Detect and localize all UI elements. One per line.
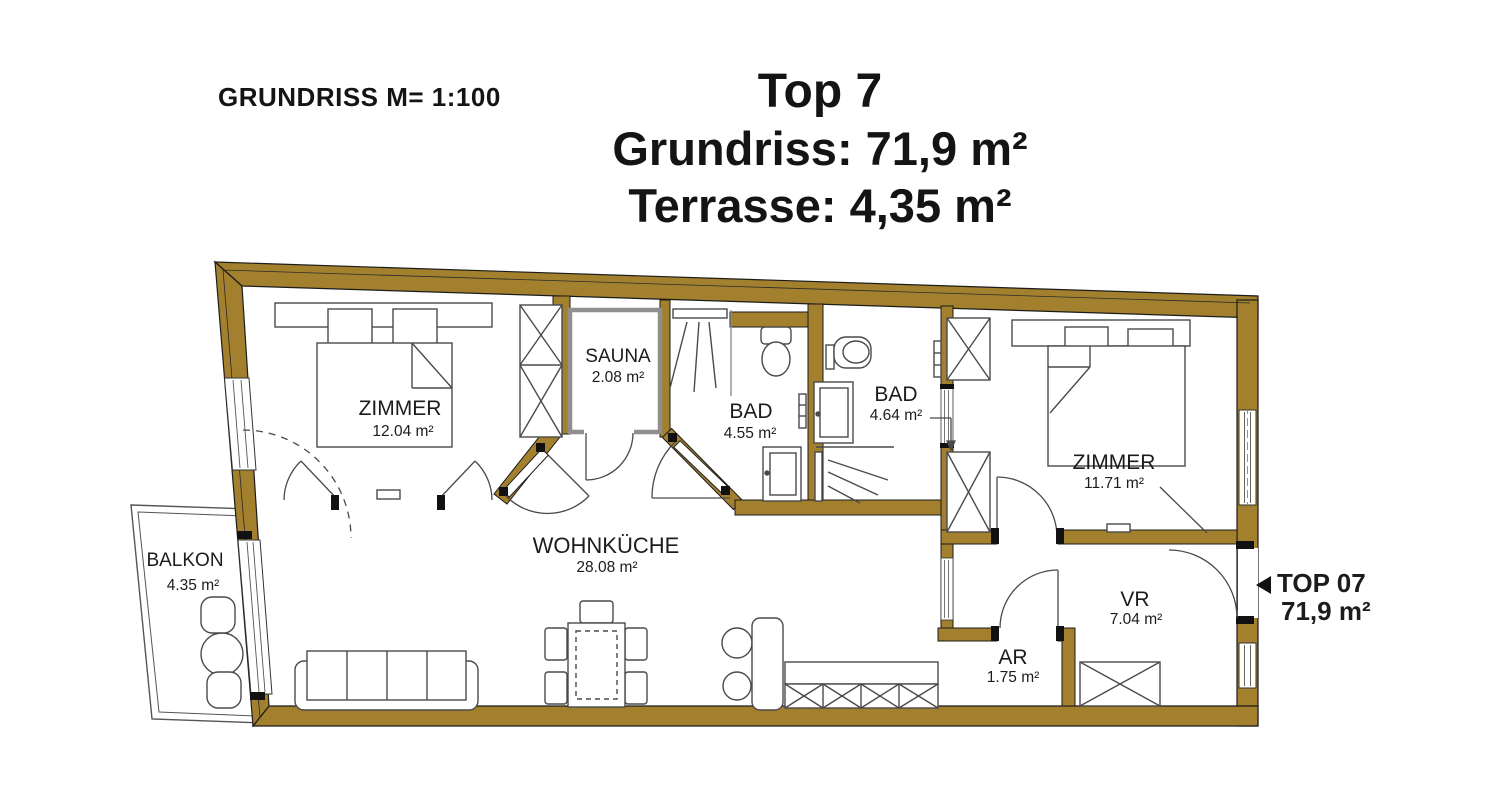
room-label-balcony: BALKON — [146, 550, 223, 571]
unit-marker: TOP 07 71,9 m² — [1256, 568, 1371, 626]
storage-door — [1000, 570, 1058, 628]
room-area-balcony: 4.35 m² — [167, 577, 220, 594]
bath2-shower — [815, 447, 894, 503]
bedroom2-bed — [1048, 327, 1185, 466]
unit-title-block: Top 7 Grundriss: 71,9 m² Terrasse: 4,35 … — [570, 64, 1070, 234]
sliding-door-bath2 — [930, 384, 955, 450]
room-area-bath2: 4.64 m² — [870, 407, 923, 424]
unit-terrace-area: Terrasse: 4,35 m² — [570, 177, 1070, 234]
shower-symbol — [670, 309, 731, 396]
room-area-sauna: 2.08 m² — [592, 369, 645, 386]
unit-marker-area: 71,9 m² — [1281, 596, 1371, 626]
bedroom2-wardrobes — [947, 318, 990, 532]
unit-marker-label: TOP 07 — [1277, 568, 1366, 598]
room-label-sauna: SAUNA — [585, 346, 651, 367]
unit-title: Top 7 — [570, 64, 1070, 120]
bath2-toilet — [826, 337, 871, 369]
bedroom1-wardrobe — [520, 305, 562, 437]
plan-scale-label: GRUNDRISS M= 1:100 — [218, 82, 501, 113]
room-area-bedroom1: 12.04 m² — [372, 423, 433, 440]
bath1-sink — [763, 447, 801, 501]
bath1-toilet — [761, 327, 791, 376]
right-wall-window-bedroom2 — [1239, 406, 1256, 508]
room-area-bedroom2: 11.71 m² — [1084, 475, 1144, 492]
bath1-radiator — [799, 394, 806, 428]
room-area-storage: 1.75 m² — [987, 669, 1040, 686]
room-area-hall: 7.04 m² — [1110, 611, 1163, 628]
room-label-bath1: BAD — [729, 400, 772, 423]
room-label-bedroom1: ZIMMER — [359, 397, 442, 420]
room-label-storage: AR — [998, 646, 1027, 669]
left-wall-window — [225, 378, 257, 470]
room-area-bath1: 4.55 m² — [724, 425, 777, 442]
hall-wardrobe — [1080, 662, 1160, 706]
unit-floor-area: Grundriss: 71,9 m² — [570, 120, 1070, 177]
sofa — [295, 651, 478, 710]
right-wall-window-hall — [1239, 643, 1256, 688]
bedroom2-door — [997, 477, 1057, 537]
hall-kitchen-glass-panel — [941, 558, 953, 620]
bath2-radiator — [934, 341, 941, 377]
bedroom2-corner-line — [1160, 487, 1207, 533]
bedroom1-headboard-shelf — [275, 303, 492, 327]
bath2-sink — [814, 382, 853, 443]
room-area-living-kitchen: 28.08 m² — [576, 559, 637, 576]
floor-plan-page: GRUNDRISS M= 1:100 Top 7 Grundriss: 71,9… — [0, 0, 1500, 798]
entrance-door-opening — [1236, 541, 1258, 624]
bedroom1-bench — [377, 490, 400, 499]
room-label-living-kitchen: WOHNKÜCHE — [533, 533, 680, 558]
room-label-bedroom2: ZIMMER — [1073, 451, 1156, 474]
room-label-hall: VR — [1120, 588, 1149, 611]
room-label-bath2: BAD — [874, 383, 917, 406]
entrance-door-swing — [1169, 550, 1237, 618]
bedroom2-bench — [1107, 524, 1130, 532]
kitchen-block — [722, 618, 938, 710]
sauna-door — [586, 433, 633, 480]
dining-table — [545, 601, 647, 707]
